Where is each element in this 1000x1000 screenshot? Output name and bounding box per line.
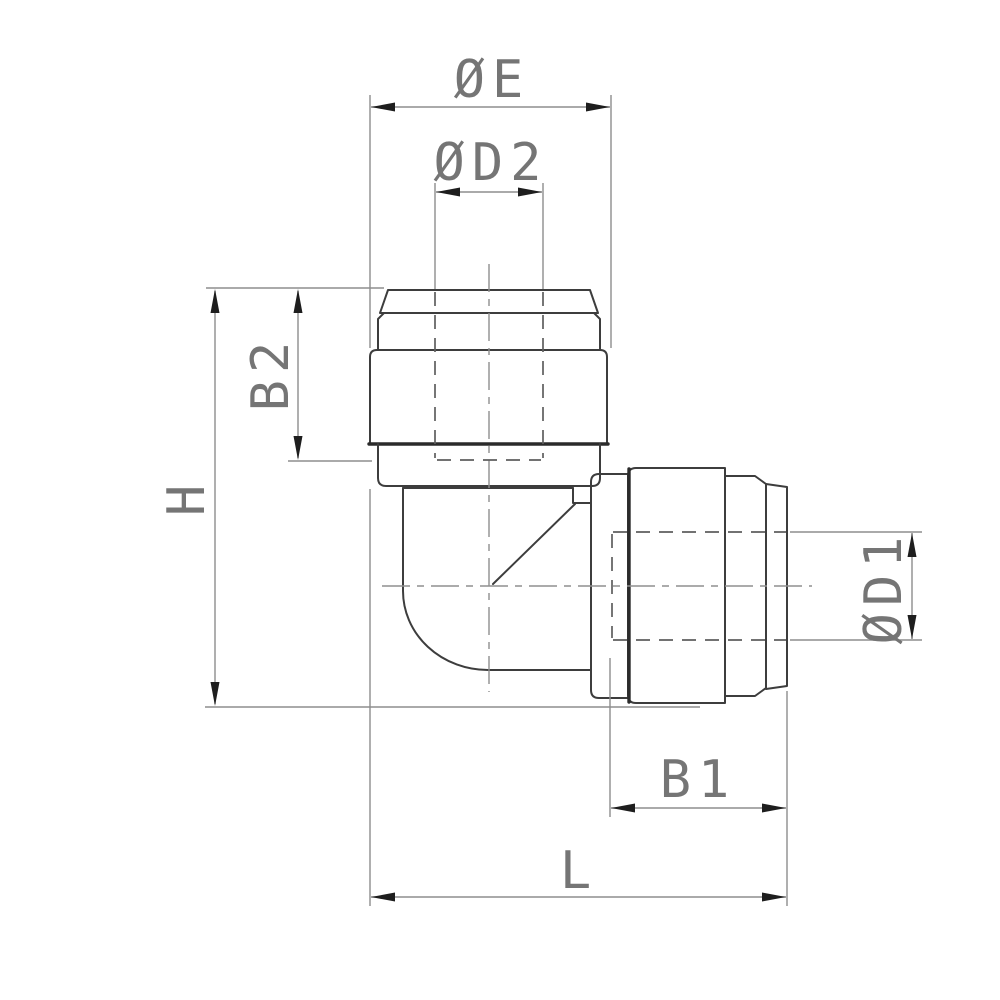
- label-od1: ØD1: [854, 530, 914, 645]
- oe-arrow-right: [586, 103, 610, 112]
- h-arrow-bottom: [211, 682, 220, 706]
- oe-arrow-left: [371, 103, 395, 112]
- fitting-outline: [369, 290, 787, 703]
- centerlines: [382, 264, 812, 692]
- b2-arrow-bottom: [294, 436, 303, 460]
- label-l: L: [560, 841, 598, 901]
- label-od2: ØD2: [434, 133, 549, 193]
- dimension-b1: B1: [610, 658, 786, 817]
- b1-arrow-left: [611, 804, 635, 813]
- elbow-fitting-drawing: ØE ØD2 H B2 ØD1 B1: [0, 0, 1000, 1000]
- dimension-od1: ØD1: [790, 530, 922, 645]
- label-h: H: [157, 478, 217, 516]
- body-left-and-arc: [403, 488, 590, 670]
- h-arrow-top: [211, 289, 220, 313]
- l-arrow-left: [371, 893, 395, 902]
- b2-arrow-top: [294, 289, 303, 313]
- body-corner-notch: [573, 488, 591, 503]
- label-b1: B1: [660, 750, 737, 810]
- label-oe: ØE: [454, 50, 531, 110]
- technical-drawing-canvas: ØE ØD2 H B2 ØD1 B1: [0, 0, 1000, 1000]
- dimension-od2: ØD2: [434, 133, 549, 289]
- b1-arrow-right: [762, 804, 786, 813]
- dimension-oe: ØE: [370, 50, 611, 348]
- body-bore-intersection-diagonal: [493, 504, 575, 584]
- l-arrow-right: [762, 893, 786, 902]
- label-b2: B2: [241, 335, 301, 412]
